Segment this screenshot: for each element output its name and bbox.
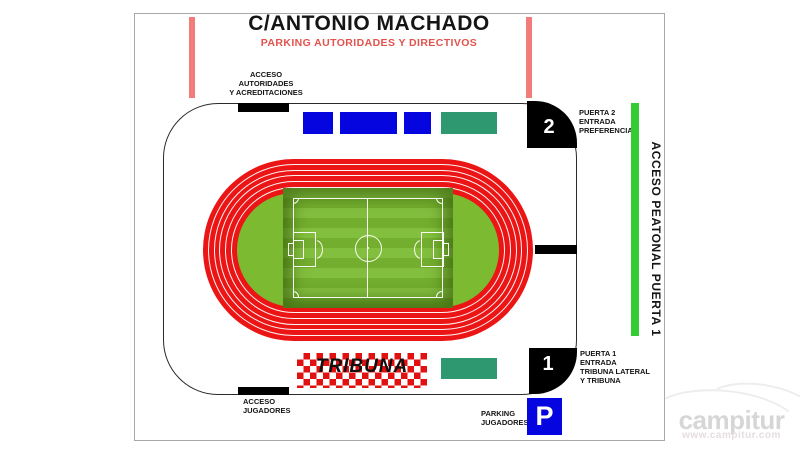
access-players-line2: JUGADORES (243, 406, 291, 415)
tribuna-label: TRIBUNA (287, 356, 437, 378)
football-pitch (283, 188, 453, 308)
gate-2-number: 2 (543, 116, 554, 139)
access-authorities-line3: Y ACREDITACIONES (206, 88, 326, 97)
goal-right (443, 243, 449, 256)
parking-players-label: PARKING JUGADORES (481, 409, 529, 427)
access-gap-authorities (238, 103, 289, 112)
gate-2-line3: PREFERENCIA (579, 126, 633, 135)
access-authorities-line2: AUTORIDADES (206, 79, 326, 88)
seating-block-blue-1 (303, 112, 333, 134)
parking-players-line1: PARKING (481, 409, 529, 418)
access-authorities-label: ACCESO AUTORIDADES Y ACREDITACIONES (206, 70, 326, 97)
corner-arc (436, 291, 442, 297)
center-spot (367, 247, 369, 249)
gate-1-line4: Y TRIBUNA (580, 376, 650, 385)
gate-2-line2: ENTRADA (579, 117, 633, 126)
access-authorities-line1: ACCESO (206, 70, 326, 79)
parking-authorities-subtitle: PARKING AUTORIDADES Y DIRECTIVOS (163, 37, 575, 49)
stadium-access-map: C/ANTONIO MACHADO PARKING AUTORIDADES Y … (0, 0, 800, 450)
gate-2-label: PUERTA 2 ENTRADA PREFERENCIA (579, 108, 633, 135)
watermark-site: www.campitur.com (663, 430, 800, 441)
access-players-label: ACCESO JUGADORES (243, 397, 291, 415)
access-gap-players (238, 387, 289, 395)
parking-icon: P (527, 398, 562, 435)
pedestrian-access-label: ACCESO PEATONAL PUERTA 1 (649, 119, 663, 359)
gate-1-number: 1 (542, 353, 553, 376)
gate-1-label: PUERTA 1 ENTRADA TRIBUNA LATERAL Y TRIBU… (580, 349, 650, 385)
pedestrian-access-bar (631, 103, 639, 336)
seating-block-blue-2 (340, 112, 397, 134)
goal-left (288, 243, 294, 256)
seating-block-blue-3 (404, 112, 431, 134)
gate-2-line1: PUERTA 2 (579, 108, 633, 117)
seating-block-green-top (441, 112, 497, 134)
goal-area-left (293, 240, 304, 259)
authorities-parking-bar-right (526, 17, 532, 98)
authorities-parking-bar-left (189, 17, 195, 98)
gate-1-line2: ENTRADA (580, 358, 650, 367)
parking-symbol: P (535, 401, 553, 432)
street-title: C/ANTONIO MACHADO (163, 12, 575, 36)
access-gap-right (535, 245, 577, 254)
parking-players-line2: JUGADORES (481, 418, 529, 427)
seating-block-green-bottom (441, 358, 497, 379)
access-players-line1: ACCESO (243, 397, 291, 406)
gate-1-line1: PUERTA 1 (580, 349, 650, 358)
gate-1-line3: TRIBUNA LATERAL (580, 367, 650, 376)
